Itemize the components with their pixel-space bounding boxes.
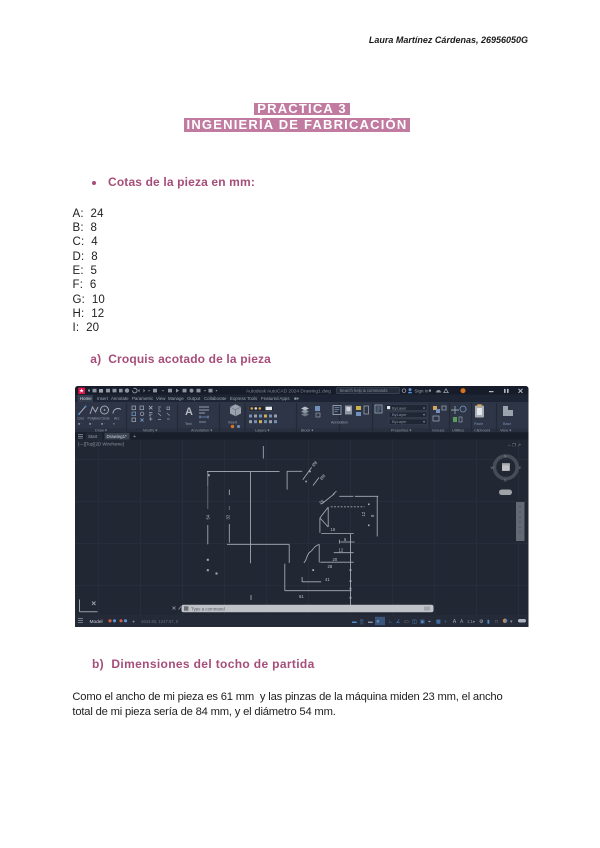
svg-text:Express Tools: Express Tools (230, 396, 258, 401)
svg-text:▒: ▒ (360, 619, 364, 625)
svg-text:■ ·: ■ · (78, 422, 82, 426)
svg-text:Output: Output (187, 396, 201, 401)
svg-text:◫: ◫ (412, 619, 417, 625)
svg-text:Model: Model (90, 619, 103, 625)
svg-text:View ▾: View ▾ (500, 428, 511, 432)
svg-text:12: 12 (339, 547, 344, 552)
svg-text:Insert: Insert (228, 420, 237, 424)
svg-text:▾: ▾ (423, 419, 425, 424)
svg-text:Line: Line (78, 416, 85, 420)
svg-text:Paste: Paste (474, 422, 483, 426)
svg-text:Featured Apps: Featured Apps (261, 396, 290, 401)
svg-text:⌖: ⌖ (428, 620, 431, 625)
svg-text:★: ★ (79, 387, 84, 394)
svg-text:1:1▾: 1:1▾ (467, 619, 475, 624)
svg-text:16: 16 (331, 527, 336, 532)
svg-text:Circle: Circle (101, 416, 110, 420)
svg-text:A: A (185, 406, 193, 418)
svg-text:Block ▾: Block ▾ (301, 428, 313, 432)
svg-text:41: 41 (325, 577, 330, 582)
svg-text:Annotation ▾: Annotation ▾ (191, 428, 212, 432)
svg-text:Layers ▾: Layers ▾ (255, 428, 269, 432)
svg-text:▭: ▭ (404, 620, 409, 625)
svg-text:Annotate: Annotate (111, 396, 129, 401)
svg-text:Type a command: Type a command (191, 606, 225, 611)
svg-text:Text: Text (185, 422, 192, 426)
svg-text:■▾: ■▾ (294, 396, 299, 401)
svg-text:Search help & commands: Search help & commands (340, 388, 388, 393)
svg-text:ByLayer: ByLayer (392, 412, 407, 417)
svg-text:Draw ▾: Draw ▾ (95, 428, 107, 432)
svg-text:∟: ∟ (388, 620, 393, 625)
svg-text:+: + (444, 620, 447, 625)
svg-text:Clipboard: Clipboard (474, 428, 490, 432)
svg-text:12: 12 (361, 511, 366, 516)
svg-text:4644.60, 1247.87, 0: 4644.60, 1247.87, 0 (141, 618, 179, 623)
svg-text:54: 54 (206, 514, 211, 519)
svg-text:Collaborate: Collaborate (204, 396, 227, 401)
svg-text:#: # (377, 619, 380, 625)
svg-text:ByLayer: ByLayer (392, 405, 407, 410)
svg-text:Start: Start (88, 433, 98, 438)
svg-text:▬: ▬ (352, 620, 357, 625)
svg-text:▾: ▾ (113, 422, 115, 426)
svg-text:Annotation: Annotation (331, 420, 348, 424)
svg-text:□: □ (495, 620, 498, 625)
svg-text:Polyline: Polyline (88, 416, 101, 420)
svg-text:Modify ▾: Modify ▾ (143, 428, 157, 432)
svg-text:Insert: Insert (97, 396, 109, 401)
svg-text:32: 32 (226, 514, 231, 519)
svg-text:+: + (133, 434, 136, 440)
svg-text:+: + (132, 619, 135, 625)
svg-text:■ ·: ■ · (89, 422, 93, 426)
svg-text:View: View (156, 396, 166, 401)
svg-text:28: 28 (328, 564, 333, 569)
svg-text:Sign In: Sign In (415, 388, 430, 393)
svg-text:Base: Base (503, 422, 511, 426)
svg-text:Properties ▾: Properties ▾ (391, 428, 411, 432)
svg-text:Utilities: Utilities (452, 428, 464, 432)
svg-text:▩: ▩ (436, 619, 441, 625)
svg-text:▮: ▮ (487, 619, 490, 625)
svg-text:▾: ▾ (423, 412, 425, 417)
svg-text:ByLayer: ByLayer (392, 419, 407, 424)
svg-text:20: 20 (333, 556, 338, 561)
svg-text:Drawing1*: Drawing1* (107, 433, 128, 438)
svg-text:■ ·: ■ · (101, 422, 105, 426)
svg-text:Ａ: Ａ (452, 619, 457, 625)
svg-text:61: 61 (299, 594, 304, 599)
svg-text:Parametric: Parametric (132, 396, 154, 401)
svg-text:[—][Top][2D Wireframe]: [—][Top][2D Wireframe] (78, 441, 124, 446)
svg-text:Manage: Manage (168, 396, 184, 401)
svg-text:– ❐ ↗: – ❐ ↗ (508, 442, 521, 447)
svg-text:Home: Home (80, 396, 92, 401)
svg-text:▣: ▣ (420, 619, 425, 625)
svg-text:Autodesk AutoCAD 2024 Drawing: Autodesk AutoCAD 2024 Drawing1.dwg (246, 388, 331, 394)
svg-text:∠: ∠ (396, 619, 400, 625)
svg-text:▬: ▬ (368, 620, 373, 625)
svg-text:▾: ▾ (423, 405, 425, 410)
svg-text:Groups: Groups (432, 428, 445, 432)
svg-text:⚙: ⚙ (479, 619, 484, 625)
svg-text:Arc: Arc (114, 416, 120, 420)
